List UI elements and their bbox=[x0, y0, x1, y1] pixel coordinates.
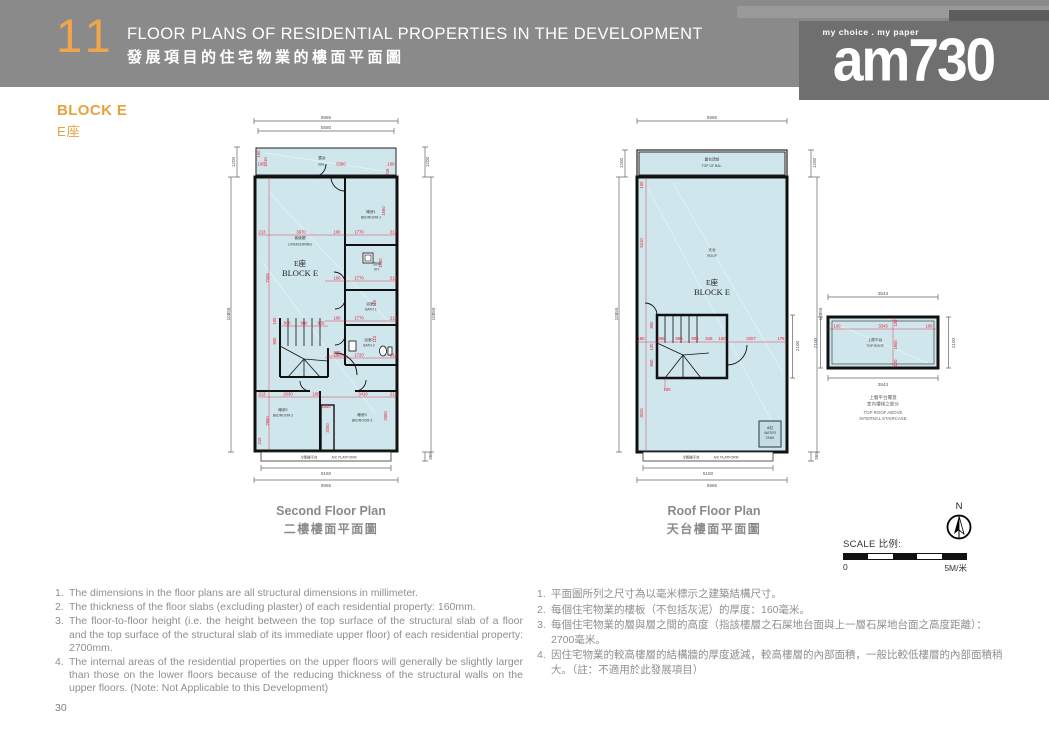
dim-label: 3343 bbox=[878, 324, 888, 329]
block-label-zh: E座 bbox=[57, 121, 127, 140]
block-name-zh: E座 bbox=[294, 258, 307, 268]
note-item: 2. 每個住宅物業的樓板（不包括灰泥）的厚度：160毫米。 bbox=[537, 603, 1009, 618]
note-number: 3. bbox=[55, 615, 69, 655]
note-number: 3. bbox=[537, 618, 551, 647]
dim-label: 365 bbox=[814, 452, 819, 460]
dim-label: 100 bbox=[272, 317, 277, 325]
block-label-en: BLOCK E bbox=[57, 102, 127, 119]
ac-platform-label-zh: 冷氣機平台 bbox=[683, 455, 701, 460]
room-label-bed1-zh: 睡房1 bbox=[366, 209, 375, 214]
dim-label: 100 bbox=[334, 230, 342, 235]
ac-platform-label-en: A/C PLATFORM bbox=[714, 456, 739, 460]
room-label-bath1-zh: 浴室1 bbox=[366, 301, 375, 306]
dim-label: 5150 bbox=[703, 471, 714, 476]
dim-label: 100 bbox=[834, 324, 842, 329]
room-label-bed3-zh: 睡房3 bbox=[357, 412, 366, 417]
second-floor-plan-caption: Second Floor Plan 二樓樓面平面圖 bbox=[243, 504, 419, 537]
note-text: 因住宅物業的較高樓層的結構牆的厚度遞減，較高樓層的內部面積，一般比較低樓層的內部… bbox=[551, 648, 1009, 677]
dim-label: 5380 bbox=[336, 162, 346, 167]
top-roof-label-zh: 上層平台 bbox=[868, 337, 883, 342]
page-title-en: FLOOR PLANS OF RESIDENTIAL PROPERTIES IN… bbox=[127, 25, 703, 44]
note-item: 4. 因住宅物業的較高樓層的結構牆的厚度遞減，較高樓層的內部面積，一般比較低樓層… bbox=[537, 648, 1009, 677]
notes-chinese: 1. 平面圖所列之尺寸為以毫米標示之建築結構尺寸。 2. 每個住宅物業的樓板（不… bbox=[537, 587, 1009, 679]
dim-label: 2100 bbox=[795, 340, 800, 351]
room-label-bed2-en: BEDROOM 2 bbox=[273, 414, 293, 418]
am730-logo: my choice . my paper am730 bbox=[737, 0, 1049, 102]
dim-label: 213 bbox=[259, 392, 267, 397]
block-name-zh: E座 bbox=[706, 277, 719, 287]
dim-label: 5965 bbox=[707, 483, 718, 488]
dim-label: 100 bbox=[926, 324, 934, 329]
top-of-bal-label-zh: 露台頂部 bbox=[705, 157, 720, 162]
note-text: 平面圖所列之尺寸為以毫米標示之建築結構尺寸。 bbox=[551, 587, 1009, 602]
dim-label: 2950 bbox=[265, 416, 270, 426]
caption-en: INTERNAL STAIRCASE bbox=[859, 416, 906, 421]
dim-label: 5150 bbox=[321, 471, 332, 476]
dim-label: 213 bbox=[259, 230, 267, 235]
dim-label: 215 bbox=[385, 168, 390, 176]
room-label-bed1-en: BEDROOM 1 bbox=[361, 216, 381, 220]
dim-label: 518 bbox=[706, 336, 714, 341]
note-text: The internal areas of the residential pr… bbox=[69, 656, 523, 696]
dim-label: 1650 bbox=[321, 404, 331, 409]
dim-label: 3045 bbox=[639, 408, 644, 418]
ac-platform bbox=[643, 452, 773, 461]
page-number: 30 bbox=[55, 702, 67, 714]
dim-label: 2100 bbox=[813, 337, 818, 348]
dim-label: 150 bbox=[638, 336, 646, 341]
page-title-zh: 發展項目的住宅物業的樓面平面圖 bbox=[127, 46, 405, 67]
roof-label-zh: 天台 bbox=[708, 247, 716, 252]
scale-graphic bbox=[843, 553, 967, 560]
dim-label: 1900 bbox=[893, 340, 898, 350]
dim-label: 908 bbox=[692, 336, 700, 341]
scale-end: 5M/米 bbox=[944, 562, 967, 574]
room-label-living-zh: 客飯廳 bbox=[294, 235, 305, 240]
dim-label: 2207 bbox=[746, 336, 756, 341]
top-roof-plan-drawing: 3543 3543 2100 2100 100 3343 100 100 190… bbox=[813, 283, 958, 441]
note-item: 1. 平面圖所列之尺寸為以毫米標示之建築結構尺寸。 bbox=[537, 587, 1009, 602]
caption-zh: 上層平台覆蓋 bbox=[869, 394, 897, 401]
note-number: 2. bbox=[537, 603, 551, 618]
top-roof-label-en: TOP ROOF bbox=[866, 344, 884, 348]
logo-name: am730 bbox=[833, 30, 994, 90]
brochure-page: 11 FLOOR PLANS OF RESIDENTIAL PROPERTIES… bbox=[0, 0, 1049, 733]
note-item: 4. The internal areas of the residential… bbox=[55, 656, 523, 696]
dim-label: 1770 bbox=[354, 276, 364, 281]
dim-label: 5965 bbox=[321, 483, 332, 488]
scale-label: SCALE 比例: bbox=[843, 536, 967, 550]
section-number: 11 bbox=[56, 12, 117, 59]
dim-label: 5410 bbox=[639, 238, 644, 248]
dim-label: 7345 bbox=[265, 273, 270, 283]
note-number: 4. bbox=[537, 648, 551, 677]
dim-label: 900 bbox=[284, 321, 292, 326]
dim-label: 100 bbox=[893, 359, 898, 367]
note-item: 3. The floor-to-floor height (i.e. the h… bbox=[55, 615, 523, 655]
roof-floor-plan-drawing: 5965 1200 10855 1200 10855 365 2100 5150… bbox=[613, 113, 825, 505]
room-label-kit-en: KIT. bbox=[374, 268, 380, 272]
dim-label: 212 bbox=[390, 316, 398, 321]
dim-label: 1720 bbox=[354, 353, 364, 358]
note-item: 2. The thickness of the floor slabs (exc… bbox=[55, 601, 523, 614]
dim-label: 960 bbox=[301, 321, 309, 326]
roof-floor-plan-caption: Roof Floor Plan 天台樓面平面圖 bbox=[626, 504, 802, 537]
dim-label: 2000 bbox=[325, 423, 330, 433]
note-number: 1. bbox=[537, 587, 551, 602]
water-tank-label-zh: 水缸 bbox=[767, 425, 774, 430]
caption-zh: 天台樓面平面圖 bbox=[626, 520, 802, 537]
dim-label: 3543 bbox=[878, 291, 889, 296]
note-text: The thickness of the floor slabs (exclud… bbox=[69, 601, 523, 614]
north-label: N bbox=[956, 501, 963, 512]
caption-zh: 二樓樓面平面圖 bbox=[243, 520, 419, 537]
room-label-bath2-en: BATH 2 bbox=[363, 344, 375, 348]
dim-label: 10855 bbox=[226, 307, 231, 320]
dim-label: 212 bbox=[390, 392, 398, 397]
water-tank-label-en: WATER bbox=[764, 431, 776, 435]
dim-label: 3543 bbox=[878, 382, 889, 387]
caption-en: Second Floor Plan bbox=[243, 504, 419, 518]
dim-label: 2950 bbox=[383, 411, 388, 421]
scale-bar: SCALE 比例: 0 5M/米 bbox=[843, 536, 967, 574]
room-label-balcony-zh: 露台 bbox=[318, 155, 326, 160]
dim-label: 100 bbox=[664, 387, 672, 392]
dim-label: 10855 bbox=[614, 307, 619, 320]
dim-label: 1200 bbox=[231, 156, 236, 167]
room-label-bed2-zh: 睡房2 bbox=[278, 407, 287, 412]
note-text: The floor-to-floor height (i.e. the heig… bbox=[69, 615, 523, 655]
dim-label: 5965 bbox=[707, 115, 718, 120]
dim-label: 100 bbox=[313, 392, 321, 397]
roof-label-en: ROOF bbox=[707, 254, 717, 258]
note-number: 1. bbox=[55, 587, 69, 600]
dim-label: 365 bbox=[428, 452, 433, 460]
dim-label: 1200 bbox=[619, 157, 624, 168]
dim-label: 900 bbox=[318, 321, 326, 326]
room-label-bath1-en: BATH 1 bbox=[365, 308, 377, 312]
dim-label: 100 bbox=[893, 319, 898, 327]
dim-label: 1770 bbox=[354, 316, 364, 321]
dim-label: 150 bbox=[256, 150, 261, 158]
caption-zh: 室內樓梯之部分 bbox=[867, 401, 900, 408]
block-name-en: BLOCK E bbox=[694, 287, 730, 297]
dim-label: 120 bbox=[649, 343, 654, 351]
dim-label: 100 bbox=[334, 276, 342, 281]
top-roof-caption: 上層平台覆蓋 室內樓梯之部分 TOP ROOF ABOVE INTERNAL S… bbox=[859, 394, 906, 421]
dim-label: 5965 bbox=[321, 115, 332, 120]
dim-label: 212 bbox=[390, 230, 398, 235]
note-text: The dimensions in the floor plans are al… bbox=[69, 587, 523, 600]
scale-start: 0 bbox=[843, 562, 848, 574]
dim-label: 212 bbox=[390, 276, 398, 281]
room-label-living-en: LIVING/DINING bbox=[288, 243, 312, 247]
dim-label: 900 bbox=[272, 337, 277, 345]
room-label-kit-zh: 廚房 bbox=[373, 261, 381, 266]
dim-label: 100 bbox=[334, 316, 342, 321]
dim-label: 150 bbox=[719, 336, 727, 341]
dim-label: 150 bbox=[639, 181, 644, 189]
dim-label: 1200 bbox=[425, 156, 430, 167]
note-text: 每個住宅物業的層與層之間的高度（指該樓層之石屎地台面與上一層石屎地台面之高度距離… bbox=[551, 618, 1009, 647]
dim-label: 965 bbox=[658, 336, 666, 341]
dim-label: 2100 bbox=[951, 337, 956, 348]
note-number: 4. bbox=[55, 656, 69, 696]
note-text: 每個住宅物業的樓板（不包括灰泥）的厚度：160毫米。 bbox=[551, 603, 1009, 618]
room-label-bath2-zh: 浴室2 bbox=[364, 337, 373, 342]
dim-label: 1010 bbox=[263, 157, 268, 167]
note-item: 3. 每個住宅物業的層與層之間的高度（指該樓層之石屎地台面與上一層石屎地台面之高… bbox=[537, 618, 1009, 647]
dim-label: 3410 bbox=[358, 392, 368, 397]
dim-label: 960 bbox=[676, 336, 684, 341]
dim-label: 870 bbox=[334, 350, 342, 355]
dim-label: 3670 bbox=[296, 230, 306, 235]
dim-label: 175 bbox=[778, 336, 786, 341]
dim-label: 860 bbox=[649, 359, 654, 367]
ac-platform-label-zh: 冷氣機平台 bbox=[301, 455, 319, 460]
caption-en: Roof Floor Plan bbox=[626, 504, 802, 518]
note-item: 1. The dimensions in the floor plans are… bbox=[55, 587, 523, 600]
ac-platform bbox=[261, 452, 391, 461]
note-number: 2. bbox=[55, 601, 69, 614]
dim-label: 860 bbox=[649, 321, 654, 329]
dim-label: 5580 bbox=[321, 125, 332, 130]
dim-label: 1770 bbox=[354, 230, 364, 235]
dim-label: 215 bbox=[257, 437, 262, 445]
water-tank-label-en: TANK bbox=[766, 436, 776, 440]
room-label-bed3-en: BEDROOM 3 bbox=[352, 419, 372, 423]
caption-en: TOP ROOF ABOVE bbox=[864, 410, 903, 415]
block-label: BLOCK E E座 bbox=[57, 102, 127, 140]
ac-platform-label-en: A/C PLATFORM bbox=[332, 456, 357, 460]
balcony-area bbox=[256, 148, 396, 175]
top-of-bal-label-en: TOP OF BAL. bbox=[702, 164, 723, 168]
dim-label: 212 bbox=[390, 353, 398, 358]
dim-label: 1200 bbox=[812, 157, 817, 168]
dim-label: 100 bbox=[388, 162, 396, 167]
block-name-en: BLOCK E bbox=[282, 268, 318, 278]
notes-english: 1. The dimensions in the floor plans are… bbox=[55, 587, 523, 697]
dim-label: 2030 bbox=[283, 392, 293, 397]
dim-label: 10855 bbox=[431, 307, 436, 320]
room-label-balcony-en: BAL. bbox=[318, 163, 325, 167]
dim-label: 1660 bbox=[381, 206, 386, 216]
second-floor-plan-drawing: 5965 5580 1200 10855 1200 10855 365 5150… bbox=[225, 113, 437, 505]
